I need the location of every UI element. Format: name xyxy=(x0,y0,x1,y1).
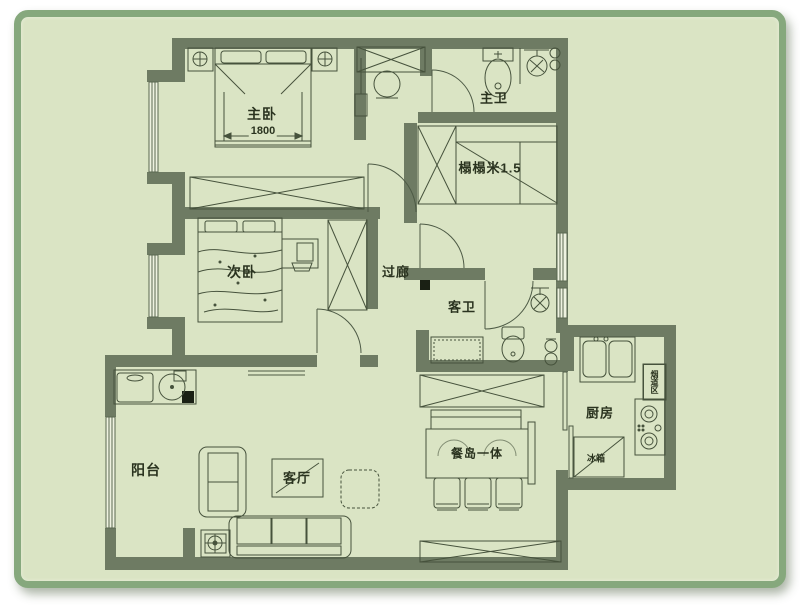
master-wardrobe-icon xyxy=(190,177,364,209)
dining-island-label: 餐岛一体 xyxy=(451,445,503,462)
sideboard-icon xyxy=(431,410,521,429)
rug-icon xyxy=(341,470,379,508)
master-bath-door xyxy=(432,70,474,112)
bed-dimension-label: 1800 xyxy=(249,125,277,137)
stove-icon xyxy=(635,399,665,455)
desk-icon xyxy=(282,239,318,271)
master-bath-label: 主卫 xyxy=(480,88,508,107)
balcony-label: 阳台 xyxy=(131,460,161,480)
column-markers xyxy=(182,280,430,403)
closet-icon xyxy=(357,47,425,72)
master-bedroom-label: 主卧 xyxy=(247,104,277,124)
second-wardrobe-icon xyxy=(328,220,367,310)
kitchen-sliding-door xyxy=(563,372,573,478)
loveseat-icon xyxy=(199,447,246,517)
dining-chair-icon xyxy=(434,478,522,510)
guest-bath-window xyxy=(557,288,567,318)
guest-bath-door xyxy=(485,281,533,329)
living-threshold xyxy=(248,371,305,375)
balcony-window xyxy=(106,417,115,528)
bay-window-second xyxy=(149,255,158,317)
floor-plan: 主卧 1800 主卫 榻榻米1.5 次卧 过廊 客卫 厨房 冰箱 阳台 客厅 餐… xyxy=(0,0,800,616)
second-bedroom-label: 次卧 xyxy=(227,262,257,282)
bay-window-master xyxy=(149,82,158,172)
shower-icon xyxy=(524,50,549,76)
floor-plan-drawing xyxy=(0,0,800,616)
tatami-room-label: 榻榻米1.5 xyxy=(458,158,521,177)
corridor-label: 过廊 xyxy=(382,262,410,281)
tatami-wardrobe-icon xyxy=(418,126,456,204)
second-bedroom-door xyxy=(317,309,361,353)
flue-label: 烟道区 xyxy=(643,364,666,400)
kitchen-sink-icon xyxy=(580,337,635,382)
side-table-icon xyxy=(201,530,230,557)
nightstand-icon xyxy=(188,48,337,71)
walls xyxy=(105,38,676,570)
kitchen-label: 厨房 xyxy=(586,403,614,422)
living-room-label: 客厅 xyxy=(283,468,311,487)
fridge-label: 冰箱 xyxy=(587,452,605,465)
guest-bath-label: 客卫 xyxy=(448,297,476,316)
guest-toilet-icon xyxy=(502,327,524,362)
sofa-icon xyxy=(229,516,351,558)
bathtub-icon xyxy=(431,337,483,363)
guest-shower-icon xyxy=(531,288,549,312)
storage-cabinet-icon xyxy=(420,375,544,407)
tatami-window xyxy=(557,233,567,281)
tatami-door xyxy=(420,224,464,268)
